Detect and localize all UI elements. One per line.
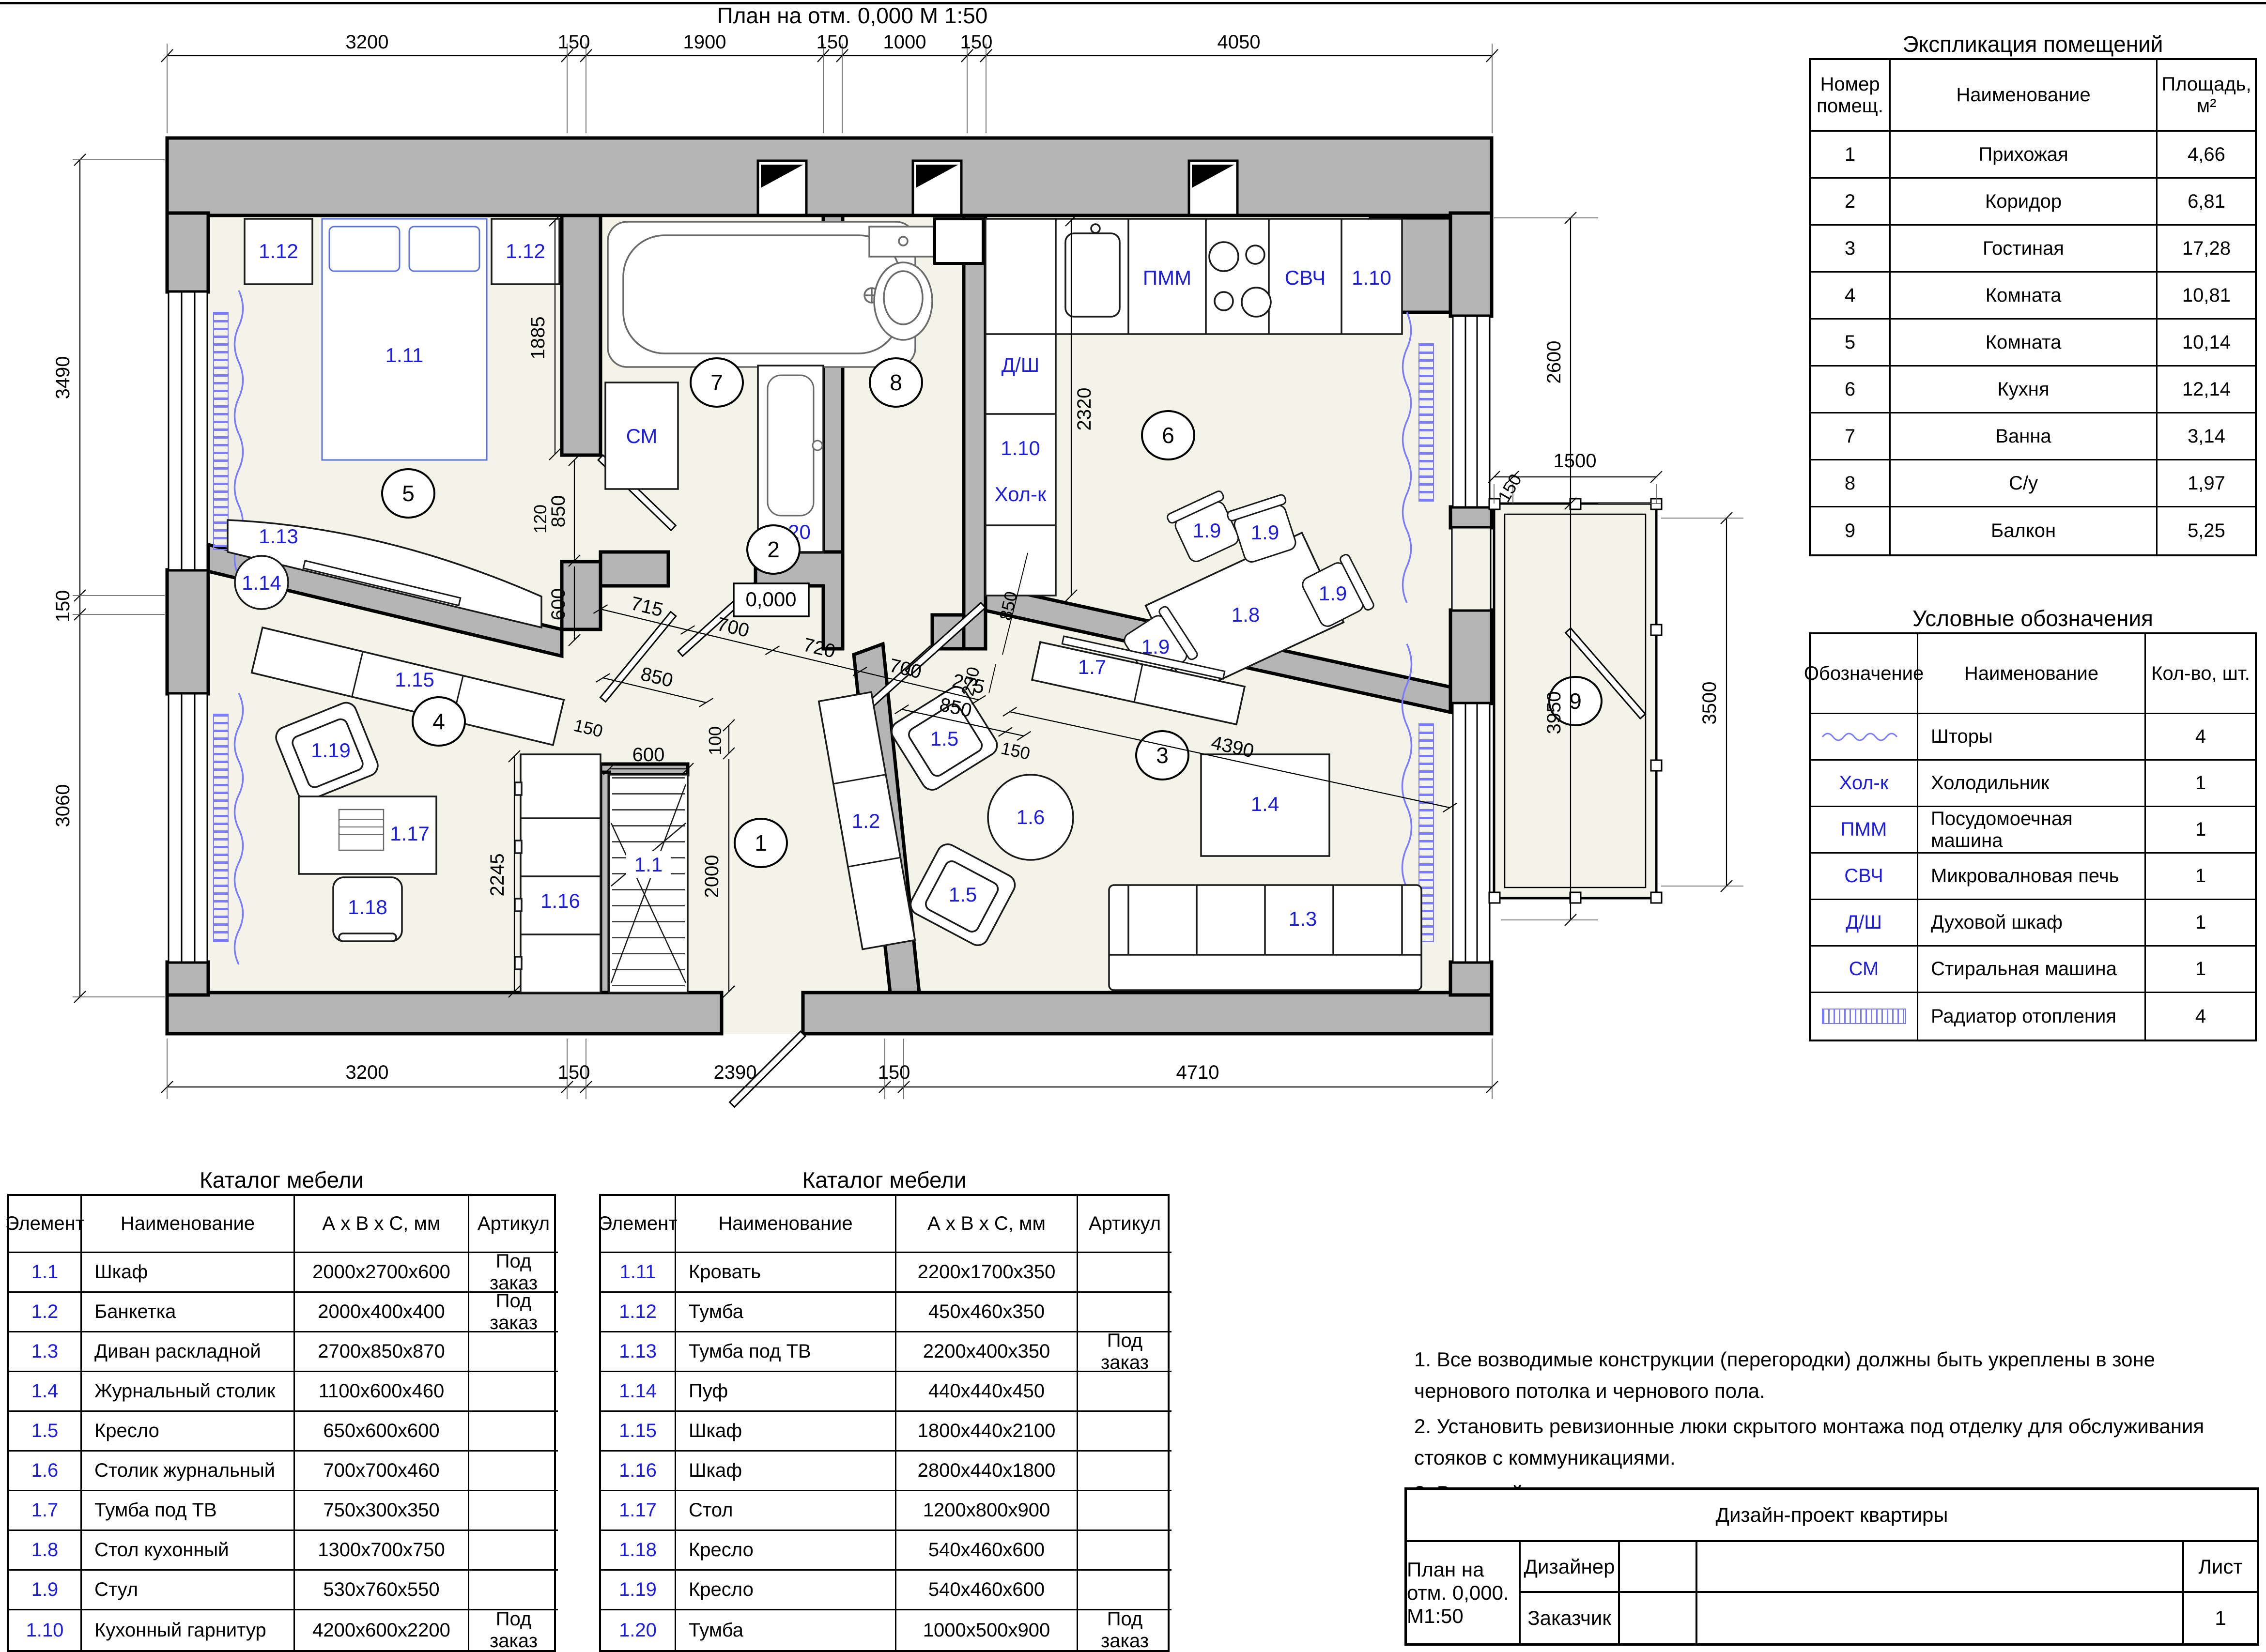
dim-label: 2320 [1074,388,1095,431]
col-header: Наименование [676,1196,896,1253]
project-title: Дизайн-проект квартиры [1407,1490,2257,1542]
col-header: Элемент [601,1196,676,1253]
cell-element: 1.4 [9,1372,82,1412]
cell-article [469,1372,558,1412]
dim-label: 2390 [714,1062,757,1083]
dim-label: 120 [530,505,550,534]
cell-size: 1200х800х900 [896,1491,1078,1531]
cell-num: 2 [1811,179,1891,226]
furniture-label: 1.9 [1251,521,1279,544]
furniture-label: 1.4 [1251,793,1279,815]
cell-name: Стол [676,1491,896,1531]
bed [322,219,487,460]
cell-element: 1.12 [601,1293,676,1332]
furniture-label: 1.14 [242,571,281,594]
room-number: 3 [1156,743,1169,768]
furniture-label: 1.8 [1232,603,1260,626]
wall-left-pier3 [167,962,208,995]
page-title: План на отм. 0,000 М 1:50 [717,3,988,28]
wall-closet-left [601,772,609,993]
furniture-label: 1.16 [540,889,580,912]
cell-name: Кресло [82,1412,295,1452]
col-header: Кол-во, шт. [2146,634,2255,714]
wall-bedroom-right [562,215,601,455]
cell-article [469,1491,558,1531]
cell-area: 6,81 [2158,179,2255,226]
cell-name: Кухня [1891,367,2158,413]
burner [1246,245,1264,264]
cell-element: 1.3 [9,1332,82,1372]
cell-symbol: ПММ [1811,807,1918,854]
furniture-label: 1.12 [506,240,545,262]
vent-icon [1189,161,1237,215]
cell-num: 6 [1811,367,1891,413]
cell-num: 1 [1811,132,1891,179]
cell-name: Духовой шкаф [1918,900,2146,947]
furniture-label: 1.5 [930,727,958,750]
cell-name: С/у [1891,460,2158,507]
cell-name: Посудомоечная машина [1918,807,2146,854]
cell-article: Под заказ [469,1253,558,1293]
wall-right-pier1 [1450,213,1492,316]
dim-label: 3060 [52,784,74,827]
explication-title: Экспликация помещений [1809,30,2257,58]
cell-element: 1.1 [9,1253,82,1293]
dim-label: 100 [705,726,725,755]
cell-symbol: СВЧ [1811,854,1918,900]
room-number: 6 [1162,423,1174,448]
burner [1215,292,1233,310]
cell-area: 1,97 [2158,460,2255,507]
wall-right-pier4 [1450,962,1492,995]
cell-name: Комната [1891,320,2158,367]
wall-bottom-left [167,993,722,1034]
cell-qty: 1 [2146,900,2255,947]
furniture-label: 1.7 [1078,656,1106,678]
furniture-label: 1.19 [311,739,351,762]
cell-name: Тумба [676,1293,896,1332]
cell-name: Банкетка [82,1293,295,1332]
col-header: Элемент [9,1196,82,1253]
vent-icon [913,161,961,215]
cell-size: 540х460х600 [896,1531,1078,1571]
cell-size: 440х440х450 [896,1372,1078,1412]
dim-label: 3200 [346,1062,389,1083]
cell-element: 1.7 [9,1491,82,1531]
cell-name: Кровать [676,1253,896,1293]
vent-icon [758,161,806,215]
cell-name: Прихожая [1891,132,2158,179]
level-mark-value: 0,000 [745,588,796,611]
dim-label: 3490 [52,356,74,399]
room-number: 1 [755,830,767,856]
cell-article: Под заказ [469,1293,558,1332]
cell-area: 3,14 [2158,413,2255,460]
furniture-label: 1.15 [395,668,434,691]
cell-name: Столик журнальный [82,1452,295,1491]
cell-article [1078,1293,1172,1332]
cell-size: 2800х440х1800 [896,1452,1078,1491]
cell-article [1078,1452,1172,1491]
cell-name: Коридор [1891,179,2158,226]
cell-name: Шкаф [82,1253,295,1293]
cell-size: 650х600х600 [295,1412,469,1452]
cell-size: 700х700х460 [295,1452,469,1491]
cell-qty: 4 [2146,993,2255,1040]
cell-size: 2700х850х870 [295,1332,469,1372]
cell-size: 1800х440х2100 [896,1412,1078,1452]
cell-element: 1.9 [9,1571,82,1610]
appliance-label: СВЧ [1285,266,1326,289]
dim-label: 150 [52,590,74,623]
cell-area: 10,81 [2158,273,2255,320]
col-header: Наименование [1918,634,2146,714]
cell-name: Пуф [676,1372,896,1412]
cell-element: 1.6 [9,1452,82,1491]
cell-element: 1.10 [9,1610,82,1650]
level-mark: 0,000 [734,583,809,616]
cell-element: 1.18 [601,1531,676,1571]
cell-article [1078,1412,1172,1452]
toilet [869,227,937,340]
appliance-label: ПММ [1143,266,1191,289]
sink [1065,233,1120,317]
wall-top [167,138,1492,215]
dim-label: 150 [878,1062,910,1083]
cell-area: 12,14 [2158,367,2255,413]
cell-article [469,1531,558,1571]
cell-size: 1300х700х750 [295,1531,469,1571]
designer-label: Дизайнер [1521,1542,1620,1593]
room-number: 8 [890,370,902,395]
cell-size: 4200х600х2200 [295,1610,469,1650]
catalog1-title: Каталог мебели [7,1166,556,1194]
furniture-label: 1.9 [1319,582,1347,605]
cell-size: 1100х600х460 [295,1372,469,1412]
radiator-symbol-icon [1811,993,1918,1040]
dim-label: 150 [960,31,993,53]
furniture-label: 1.17 [390,822,430,845]
wall-right-pier2 [1450,507,1492,528]
cell-name: Радиатор отопления [1918,993,2146,1040]
cell-article [1078,1491,1172,1531]
furniture-catalog-1: Каталог мебели Элемент Наименование А х … [7,1166,556,1652]
cell-article [1078,1253,1172,1293]
cell-name: Комната [1891,273,2158,320]
wall-left-pier2 [167,570,208,694]
cell-size: 2200х1700х350 [896,1253,1078,1293]
dim-label: 600 [548,588,569,621]
title-block: Дизайн-проект квартиры Дизайнер План на … [1404,1487,2259,1646]
dim-label: 2000 [701,855,723,898]
furniture-label: 1.18 [348,896,387,918]
cell-size: 2000х400х400 [295,1293,469,1332]
empty-cell [1620,1542,1697,1593]
cell-symbol: СМ [1811,947,1918,993]
furniture-label: 1.6 [1017,806,1045,828]
cell-name: Журнальный столик [82,1372,295,1412]
room-number: 2 [767,537,780,562]
dim-label: 150 [558,31,590,53]
cell-num: 5 [1811,320,1891,367]
cell-name: Балкон [1891,507,2158,554]
room-number: 5 [402,481,415,506]
curtain-symbol-icon [1811,714,1918,761]
dim-label: 1000 [883,31,926,53]
cell-name: Стул [82,1571,295,1610]
furniture-label: 1.10 [1001,437,1040,459]
furniture-label: 1.13 [259,525,298,548]
kitchen-counter [1056,219,1402,334]
note-item: 1. Все возводимые конструкции (перегород… [1414,1344,2208,1407]
col-header: А х В х С, мм [295,1196,469,1253]
sheet-label: Лист [2184,1542,2257,1593]
cell-size: 450х460х350 [896,1293,1078,1332]
explication-table: Экспликация помещений Номер помещ. Наиме… [1809,30,2257,556]
cell-name: Микровалновая печь [1918,854,2146,900]
col-header: Наименование [82,1196,295,1253]
furniture-label: 1.10 [1352,266,1391,289]
window-kitchen [1453,316,1490,507]
cell-article [1078,1571,1172,1610]
cell-size: 1000х500х900 [896,1610,1078,1650]
dim-label: 4710 [1176,1062,1219,1083]
cell-article [469,1412,558,1452]
empty-cell [1697,1542,2184,1593]
cell-name: Шкаф [676,1412,896,1452]
cell-element: 1.15 [601,1412,676,1452]
cell-num: 8 [1811,460,1891,507]
burner [1242,288,1271,317]
cell-article: Под заказ [1078,1332,1172,1372]
legend-table: Условные обозначения Обозначение Наимено… [1809,604,2257,1041]
dim-label: 150 [558,1062,590,1083]
col-header: А х В х С, мм [896,1196,1078,1253]
cell-qty: 4 [2146,714,2255,761]
cell-article: Под заказ [1078,1610,1172,1650]
dim-label: 3500 [1699,682,1720,725]
cell-element: 1.2 [9,1293,82,1332]
cell-name: Кресло [676,1531,896,1571]
design-project-sheet: { "page": { "title": "План на отм. 0,000… [0,0,2266,1647]
furniture-label: 1.1 [634,853,663,876]
cell-num: 9 [1811,507,1891,554]
dim-label: 3950 [1543,691,1565,734]
furniture-catalog-2: Каталог мебели Элемент Наименование А х … [599,1166,1170,1652]
furniture-label: 1.12 [259,240,298,262]
window-room4 [169,694,207,962]
cell-article [469,1332,558,1372]
cell-qty: 1 [2146,947,2255,993]
wall-bottom-right [803,993,1492,1034]
dim-label: 150 [817,31,849,53]
cell-name: Шкаф [676,1452,896,1491]
cell-article [1078,1372,1172,1412]
dim-label: 1900 [683,31,726,53]
appliance-label: СМ [626,425,658,447]
cell-article [1078,1531,1172,1571]
cell-size: 750х300х350 [295,1491,469,1531]
empty-cell [1697,1593,2184,1643]
cell-name: Гостиная [1891,226,2158,273]
wardrobe-hall [515,754,601,993]
note-item: 2. Установить ревизионные люки скрытого … [1414,1410,2208,1473]
cell-area: 17,28 [2158,226,2255,273]
furniture-label: 1.11 [385,344,424,367]
cell-qty: 1 [2146,854,2255,900]
cell-name: Тумба под ТВ [676,1332,896,1372]
col-header: Площадь, м² [2158,60,2255,132]
cell-element: 1.17 [601,1491,676,1531]
cell-element: 1.16 [601,1452,676,1491]
cell-element: 1.5 [9,1412,82,1452]
wall-toilet-right [964,215,986,649]
furniture-label: 1.9 [1193,519,1221,542]
dim-label: 4050 [1218,31,1261,53]
cell-article: Под заказ [469,1610,558,1650]
wall-left-pier1 [167,213,208,292]
cell-area: 10,14 [2158,320,2255,367]
cell-element: 1.11 [601,1253,676,1293]
wall-right-pier3 [1450,610,1492,704]
cell-num: 3 [1811,226,1891,273]
furniture-label: 1.2 [852,810,880,832]
sheet-number: 1 [2184,1593,2257,1643]
legend-title: Условные обозначения [1809,604,2257,632]
cell-size: 2200х400х350 [896,1332,1078,1372]
cell-size: 530х760х550 [295,1571,469,1610]
cell-area: 4,66 [2158,132,2255,179]
sofa [1109,885,1421,990]
cell-area: 5,25 [2158,507,2255,554]
room-number: 7 [710,370,723,395]
cell-name: Холодильник [1918,761,2146,807]
col-header: Артикул [1078,1196,1172,1253]
dim-label: 1500 [1554,450,1597,472]
cell-num: 4 [1811,273,1891,320]
cell-qty: 1 [2146,807,2255,854]
empty-cell [1620,1593,1697,1643]
dim-label: 850 [548,495,569,528]
dim-label: 3200 [346,31,389,53]
furniture-label: 1.5 [949,883,977,906]
furniture-label: 1.3 [1289,907,1317,930]
shaft-niche [935,219,983,263]
hall-closet: 1.1 [609,775,688,993]
window-living [1453,704,1490,962]
cell-article [469,1452,558,1491]
tall-cabinet-column [986,219,1056,596]
balcony-doorway [1452,528,1491,610]
room-number: 4 [432,709,445,734]
cell-element: 1.14 [601,1372,676,1412]
cell-size: 2000х2700х600 [295,1253,469,1293]
cell-size: 540х460х600 [896,1571,1078,1610]
burner [1209,242,1238,271]
customer-label: Заказчик [1521,1593,1620,1643]
cell-element: 1.19 [601,1571,676,1610]
dim-label: 2600 [1543,341,1565,384]
col-header: Обозначение [1811,634,1918,714]
dim-label: 600 [632,744,665,765]
dim-label: 2245 [487,854,508,897]
cell-symbol: Хол-к [1811,761,1918,807]
appliance-label: Д/Ш [1002,353,1040,376]
laptop [339,810,384,850]
appliance-label: Хол-к [995,483,1047,505]
cell-element: 1.13 [601,1332,676,1372]
cell-name: Тумба [676,1610,896,1650]
dim-label: 1885 [527,317,549,360]
col-header: Артикул [469,1196,558,1253]
cell-name: Стиральная машина [1918,947,2146,993]
cell-name: Кресло [676,1571,896,1610]
cell-qty: 1 [2146,761,2255,807]
window-bedroom [169,292,207,570]
cell-article [469,1571,558,1610]
drawing-name: План на отм. 0,000. М1:50 [1407,1542,1521,1643]
cell-name: Ванна [1891,413,2158,460]
cell-symbol: Д/Ш [1811,900,1918,947]
cell-name: Тумба под ТВ [82,1491,295,1531]
cell-name: Стол кухонный [82,1531,295,1571]
catalog2-title: Каталог мебели [599,1166,1170,1194]
cell-element: 1.8 [9,1531,82,1571]
col-header: Наименование [1891,60,2158,132]
cell-num: 7 [1811,413,1891,460]
col-header: Номер помещ. [1811,60,1891,132]
cell-name: Шторы [1918,714,2146,761]
wall-bath-bottom [601,552,668,586]
cell-name: Кухонный гарнитур [82,1610,295,1650]
cell-element: 1.20 [601,1610,676,1650]
cell-name: Диван раскладной [82,1332,295,1372]
